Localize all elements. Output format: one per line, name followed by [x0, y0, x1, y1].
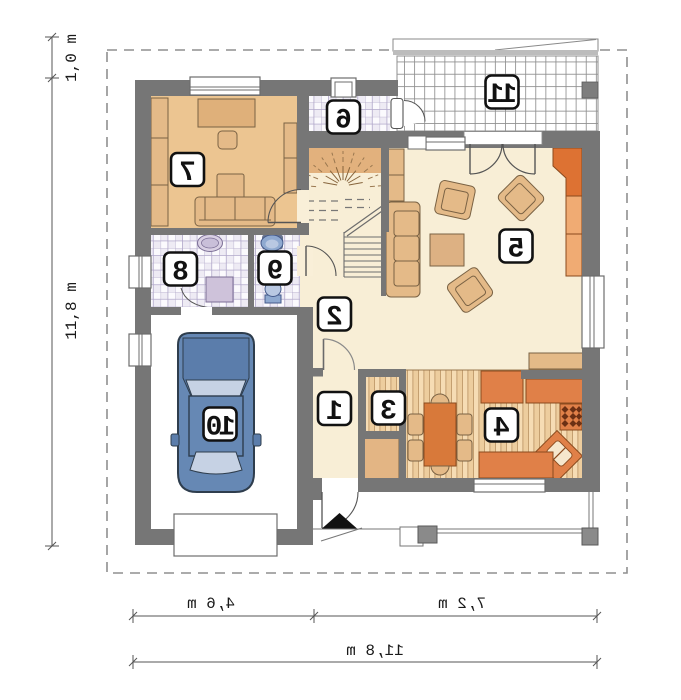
- svg-text:7: 7: [179, 158, 196, 189]
- svg-text:6: 6: [335, 106, 352, 137]
- svg-text:11,8 m: 11,8 m: [346, 642, 404, 660]
- svg-text:0: 0: [206, 413, 223, 444]
- svg-text:8: 8: [172, 258, 189, 289]
- svg-text:4,6 m: 4,6 m: [187, 595, 235, 613]
- svg-text:1: 1: [487, 80, 504, 111]
- svg-text:7,2 m: 7,2 m: [438, 595, 486, 613]
- svg-text:2: 2: [326, 303, 343, 334]
- svg-text:11,8 m: 11,8 m: [63, 282, 81, 340]
- svg-text:1: 1: [326, 397, 343, 428]
- svg-text:3: 3: [380, 397, 397, 428]
- svg-text:4: 4: [493, 414, 510, 445]
- svg-text:5: 5: [508, 235, 525, 266]
- svg-text:9: 9: [267, 257, 284, 288]
- svg-text:1,0 m: 1,0 m: [63, 34, 81, 82]
